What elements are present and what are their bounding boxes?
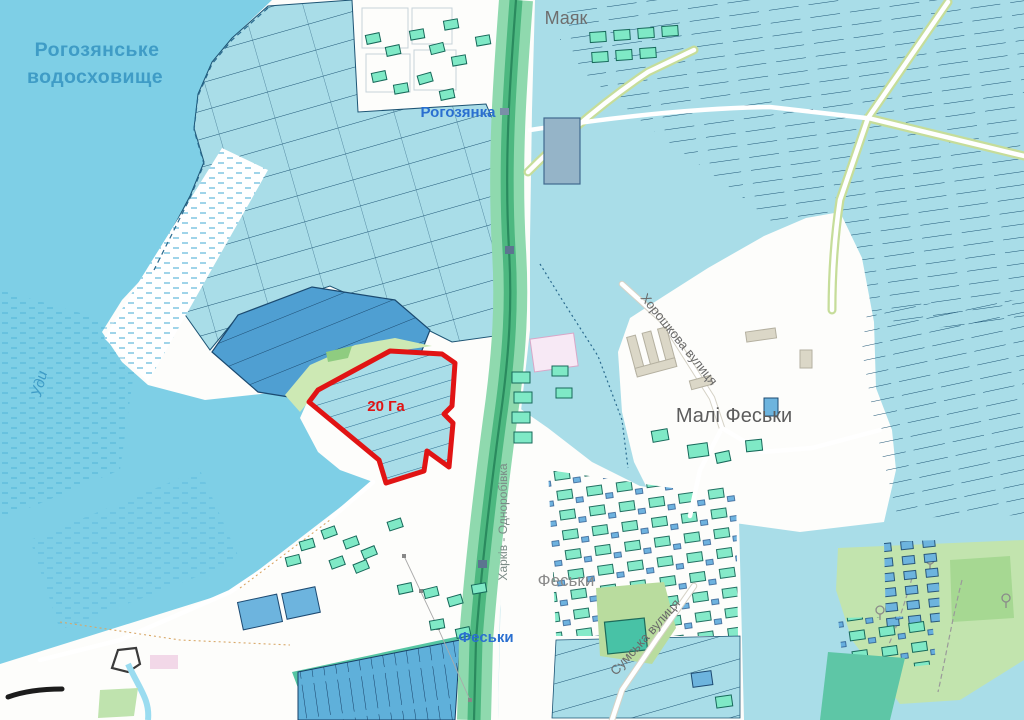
label-selected-area[interactable]: 20 Га [367, 398, 405, 415]
label-fesky-village: Феськи [538, 571, 595, 590]
label-reservoir-line1: Рогозянське [35, 39, 160, 61]
pink-patch [150, 655, 178, 669]
label-mayak: Маяк [545, 8, 588, 28]
station-marker [505, 246, 514, 254]
teal-pond-area [820, 652, 905, 720]
label-station-rohozianka: Рогозянка [421, 104, 497, 121]
station-platform [500, 108, 509, 115]
station-marker [478, 560, 487, 568]
map-svg: Рогозянське водосховище Уди Маяк Рогозян… [0, 0, 1024, 720]
dacha-cluster [884, 540, 940, 628]
label-mali-fesky: Малі Феськи [676, 405, 792, 427]
green-patch [98, 688, 138, 718]
parcel-grayblue [544, 118, 580, 184]
label-railway-line: Харків - Одноробівка [496, 463, 510, 580]
building-blue [691, 671, 713, 688]
building [715, 695, 732, 708]
label-reservoir-line2: водосховище [27, 66, 163, 88]
map-canvas[interactable]: Рогозянське водосховище Уди Маяк Рогозян… [0, 0, 1024, 720]
label-fesky-station: Феськи [458, 629, 513, 646]
